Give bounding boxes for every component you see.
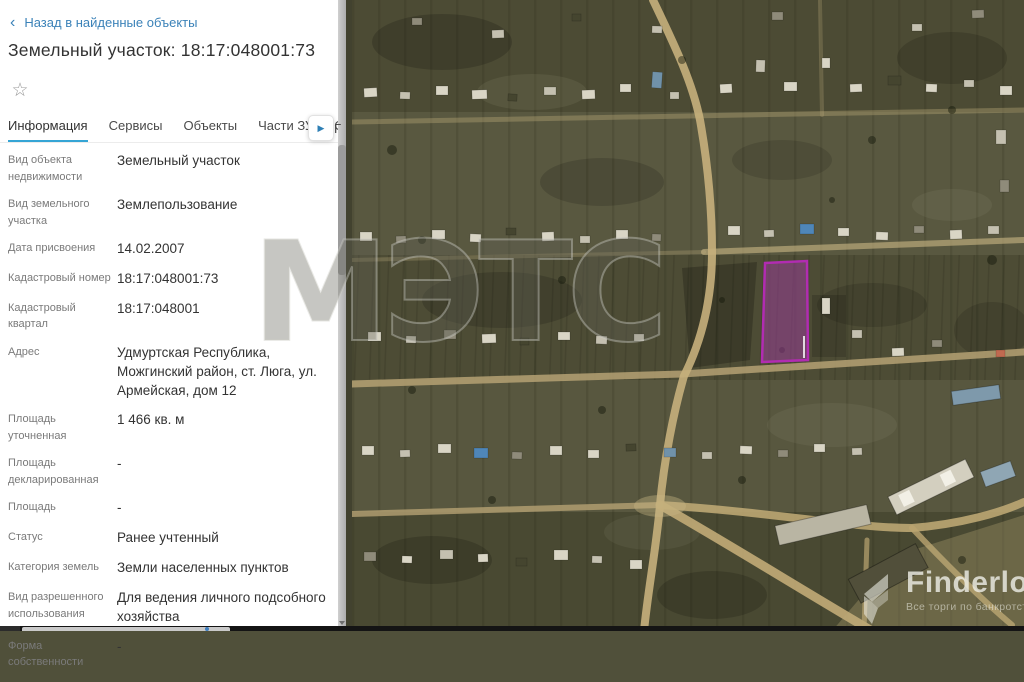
map-house — [472, 90, 487, 100]
field-row: Вид земельного участкаЗемлепользование — [8, 196, 336, 229]
field-row: Вид объекта недвижимостиЗемельный участо… — [8, 152, 336, 185]
field-row: Кадастровый номер18:17:048001:73 — [8, 270, 336, 289]
map-house — [616, 230, 628, 239]
scroll-down-arrow-icon[interactable] — [339, 621, 345, 625]
map-house — [596, 336, 607, 344]
map-house — [438, 444, 451, 453]
back-link[interactable]: ‹ Назад в найденные объекты — [10, 15, 197, 30]
map-house — [772, 12, 783, 20]
map-tree — [418, 236, 426, 244]
map-house — [728, 226, 740, 235]
map-house — [482, 334, 496, 343]
map-tree — [488, 496, 496, 504]
map-house — [364, 552, 376, 561]
map-tree — [719, 297, 725, 303]
map-house — [888, 76, 901, 85]
map-house — [664, 448, 676, 457]
map-house — [822, 58, 830, 68]
map-tree — [678, 56, 686, 64]
map-house — [436, 86, 448, 95]
map-tree — [868, 136, 876, 144]
map-house — [444, 330, 456, 339]
panel-scrollbar-track[interactable] — [338, 0, 346, 631]
back-link-label: Назад в найденные объекты — [24, 15, 197, 30]
map-tree — [829, 197, 835, 203]
map-house — [892, 348, 904, 356]
map-house — [558, 332, 570, 340]
map-house — [620, 84, 631, 92]
tab-bar: Информация Сервисы Объекты Части ЗУ Сост… — [8, 118, 338, 142]
map-tree — [738, 476, 746, 484]
tab-parcel-parts[interactable]: Части ЗУ — [258, 118, 313, 142]
taskbar-sliver — [0, 626, 1024, 631]
map-house — [964, 80, 974, 87]
highlighted-parcel[interactable] — [762, 261, 808, 362]
map-tree — [987, 255, 997, 265]
map-house — [914, 226, 924, 233]
map-house — [626, 444, 636, 451]
map-house — [1000, 86, 1012, 95]
map-house — [396, 236, 406, 243]
tab-hidden-sliver[interactable]: Г — [334, 121, 341, 136]
map-tree — [958, 556, 966, 564]
field-row: Дата присвоения14.02.2007 — [8, 240, 336, 259]
map-house — [508, 94, 517, 101]
map-house — [926, 84, 937, 92]
map-house — [852, 448, 862, 455]
map-house — [580, 236, 590, 243]
field-row: Категория земельЗемли населенных пунктов — [8, 559, 336, 578]
map-house — [432, 230, 445, 239]
map-house — [950, 230, 962, 239]
field-row: АдресУдмуртская Республика, Можгинский р… — [8, 344, 336, 401]
map-house — [720, 84, 732, 94]
map-house — [651, 72, 662, 89]
field-row: Площадь- — [8, 499, 336, 518]
field-row: Форма собственности- — [8, 638, 336, 671]
map-house — [572, 14, 581, 21]
back-chevron-icon: ‹ — [10, 16, 15, 29]
map-house — [972, 10, 984, 18]
tab-objects[interactable]: Объекты — [183, 118, 237, 142]
map-house — [478, 554, 488, 562]
field-row: Кадастровый квартал18:17:048001 — [8, 300, 336, 333]
map-house — [822, 298, 830, 314]
map-house — [544, 87, 556, 95]
field-row: СтатусРанее учтенный — [8, 529, 336, 548]
satellite-map[interactable] — [352, 0, 1024, 631]
map-house — [492, 30, 504, 38]
taskbar-start-sliver[interactable] — [0, 626, 20, 631]
map-house — [630, 560, 642, 569]
map-house — [412, 18, 422, 25]
field-row: Площадь декларированная- — [8, 455, 336, 488]
map-house — [470, 234, 481, 242]
map-house — [784, 82, 797, 91]
tab-information[interactable]: Информация — [8, 118, 88, 142]
map-house — [592, 556, 602, 563]
map-tree — [408, 386, 416, 394]
map-house — [852, 330, 862, 338]
field-row: Вид разрешенного использованияДля ведени… — [8, 589, 336, 627]
parcel-fields: Вид объекта недвижимостиЗемельный участо… — [8, 152, 336, 682]
map-house — [402, 556, 412, 563]
map-house — [634, 334, 644, 341]
map-tree — [387, 145, 397, 155]
map-house — [912, 24, 922, 31]
map-house — [582, 90, 595, 99]
map-house — [702, 452, 712, 459]
map-tree — [558, 276, 566, 284]
map-house — [652, 234, 661, 241]
map-house — [778, 450, 788, 457]
map-house — [554, 550, 568, 560]
map-house — [800, 224, 814, 234]
map-tree — [948, 106, 956, 114]
map-house — [440, 550, 453, 559]
map-house — [550, 446, 562, 455]
page-title: Земельный участок: 18:17:048001:73 — [8, 40, 315, 61]
tab-services[interactable]: Сервисы — [109, 118, 163, 142]
panel-scrollbar-thumb[interactable] — [338, 145, 346, 275]
map-tree — [598, 406, 606, 414]
map-house — [814, 444, 825, 452]
arrow-right-icon: ▶ — [318, 123, 325, 134]
map-house — [362, 446, 374, 455]
panel-map-divider — [346, 0, 352, 631]
map-house — [756, 60, 765, 72]
map-house — [764, 230, 774, 237]
map-house — [1000, 180, 1009, 192]
map-house — [474, 448, 488, 458]
tabs-scroll-right-button[interactable]: ▶ — [308, 115, 334, 141]
map-house — [400, 92, 410, 99]
map-house — [838, 228, 849, 236]
taskbar-searchbox-sliver[interactable] — [22, 627, 230, 631]
map-house — [670, 92, 679, 99]
map-house — [996, 350, 1005, 357]
map-house — [360, 232, 372, 241]
taskbar-search-icon — [205, 627, 209, 631]
favorite-star-icon[interactable]: ☆ — [6, 76, 34, 104]
map-house — [932, 340, 942, 347]
map-house — [400, 450, 410, 457]
map-house — [364, 88, 377, 98]
satellite-map-canvas — [352, 0, 1024, 631]
map-house — [506, 228, 516, 235]
map-house — [876, 232, 888, 240]
map-house — [850, 84, 862, 92]
map-house — [996, 130, 1006, 144]
map-house — [542, 232, 554, 241]
tabs-divider — [0, 142, 338, 143]
map-house — [406, 336, 416, 343]
map-house — [652, 26, 662, 33]
field-row: Площадь уточненная1 466 кв. м — [8, 411, 336, 444]
map-house — [516, 558, 527, 566]
map-house — [520, 338, 529, 345]
map-house — [740, 446, 752, 454]
map-house — [368, 332, 381, 341]
map-house — [588, 450, 599, 458]
map-house — [988, 226, 999, 234]
map-house — [512, 452, 522, 459]
